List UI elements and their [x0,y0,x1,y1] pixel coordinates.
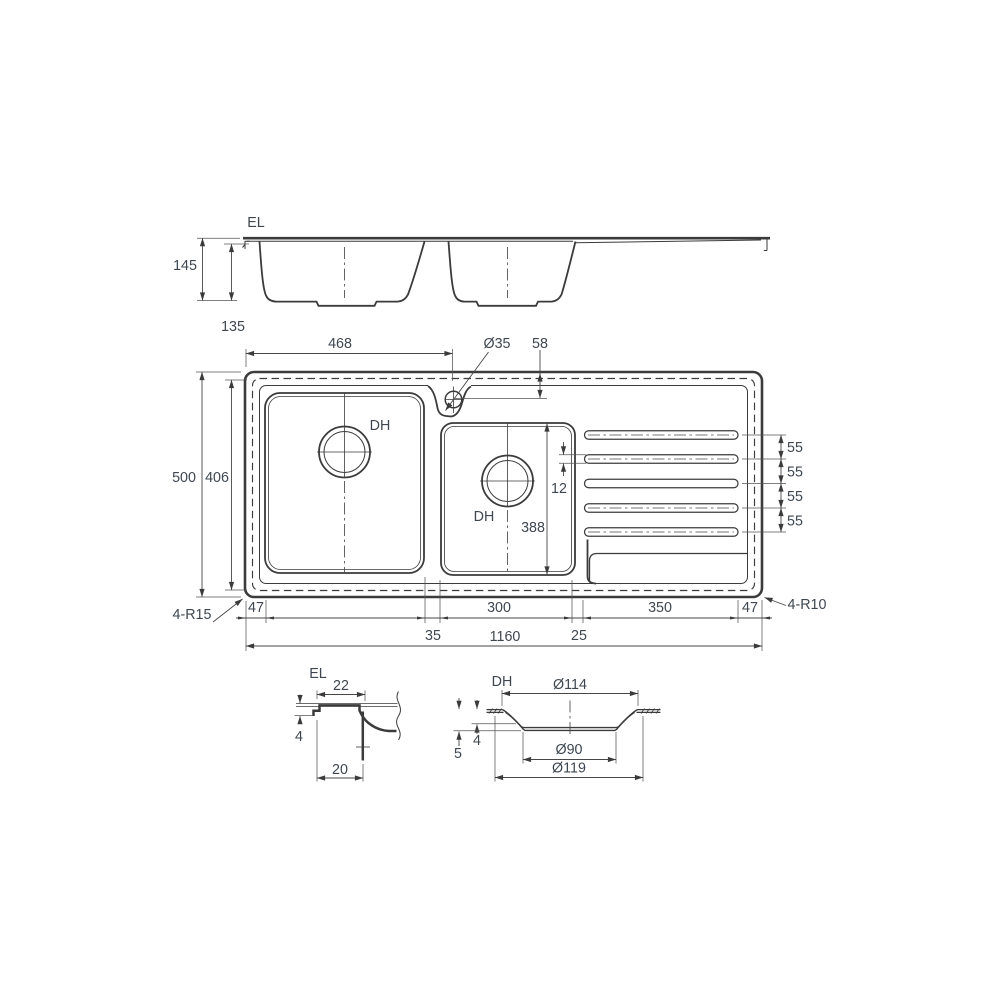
dim-90: Ø90 [555,742,582,758]
edge-lip-profile [314,705,397,731]
dim-500: 500 [172,470,196,486]
dim-4-el: 4 [295,729,303,745]
dim-350: 350 [648,600,672,616]
dim-388: 388 [521,520,545,536]
dim-468: 468 [328,336,352,352]
label-dh-right: DH [474,509,495,525]
dim-114: Ø114 [553,677,587,693]
label-dh-detail: DH [492,674,513,690]
plan-view: 468 Ø35 58 500 406 DH DH 12 388 55 55 55 [172,336,826,651]
drainer-taper-line [575,240,761,243]
dim-25: 25 [571,628,587,644]
dim-20: 20 [332,762,348,778]
elevation-view: 145 135 EL [173,215,770,335]
label-dh-left: DH [370,418,391,434]
dim-55-4: 55 [787,514,803,530]
leader-4r10 [765,598,787,606]
drain-hole-detail: DH Ø114 Ø90 Ø119 4 5 [454,674,661,782]
dim-55-2: 55 [787,465,803,481]
dim-4-dh: 4 [473,733,481,749]
dim-58: 58 [532,336,548,352]
dim-406: 406 [205,470,229,486]
dim-145: 145 [173,258,197,274]
left-bowl-section [260,242,425,306]
label-el-elevation: EL [247,215,265,231]
groove-3 [585,479,739,488]
dim-55-3: 55 [787,489,803,505]
sink-dimension-drawing: 145 135 EL [0,0,1000,1000]
edge-lip-detail: EL 22 4 20 [295,666,401,782]
left-edge-lip-hook [243,241,250,249]
dim-135: 135 [221,319,245,335]
dim-55-1: 55 [787,440,803,456]
label-4r10: 4-R10 [788,597,827,613]
dim-119: Ø119 [552,761,586,777]
dim-12: 12 [551,481,567,497]
label-4r15: 4-R15 [173,607,212,623]
dim-1160: 1160 [490,629,521,645]
dim-47-right: 47 [742,600,758,616]
dim-47-left: 47 [248,600,264,616]
dim-tap-hole-dia: Ø35 [483,336,510,352]
technical-drawing-sheet: 145 135 EL [0,0,1000,1000]
right-edge-lip-hook [763,238,771,250]
dim-22: 22 [333,678,349,694]
label-el-detail: EL [309,666,327,682]
right-bowl [441,423,575,575]
dim-35: 35 [425,628,441,644]
dim-300: 300 [487,600,511,616]
break-line [397,692,401,741]
dim-5-dh: 5 [454,746,462,762]
right-bowl-section [449,242,576,306]
